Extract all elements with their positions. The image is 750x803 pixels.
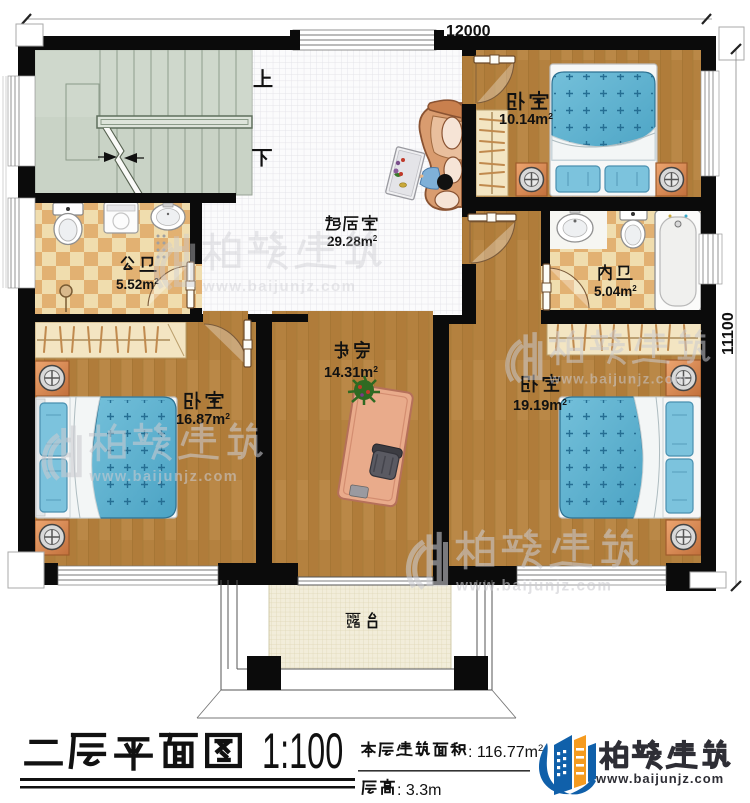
svg-text:14.31m2: 14.31m2 xyxy=(324,364,378,381)
svg-text:19.19m2: 19.19m2 xyxy=(513,397,567,414)
svg-text:1:100: 1:100 xyxy=(262,723,343,779)
svg-text:5.04m2: 5.04m2 xyxy=(594,284,637,299)
svg-text:5.52m2: 5.52m2 xyxy=(116,277,159,292)
svg-text:12000: 12000 xyxy=(446,23,491,40)
svg-text:: 116.77m2: : 116.77m2 xyxy=(468,743,543,761)
svg-text:11100: 11100 xyxy=(720,312,737,355)
svg-text:www.baijunjz.com: www.baijunjz.com xyxy=(595,771,724,786)
svg-text:: 3.3m: : 3.3m xyxy=(397,782,441,799)
svg-text:10.14m2: 10.14m2 xyxy=(499,111,553,128)
